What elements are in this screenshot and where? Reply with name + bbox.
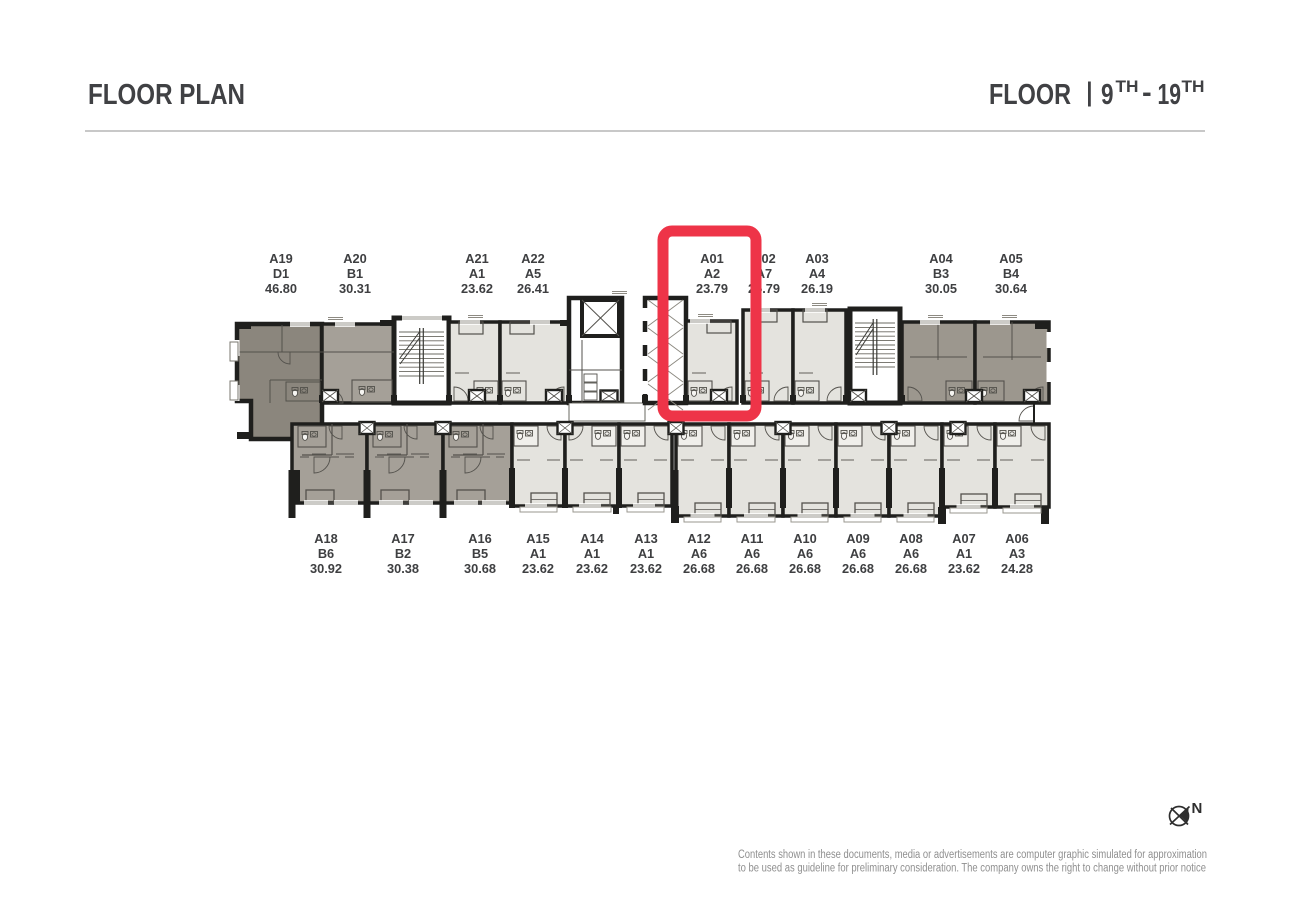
svg-text:-: - [1142, 77, 1152, 109]
svg-text:TH: TH [1182, 78, 1205, 96]
svg-text:Contents shown in these docum: Contents shown in these documents, media… [738, 849, 1207, 861]
svg-text:FLOOR: FLOOR [989, 79, 1071, 111]
svg-text:FLOOR PLAN: FLOOR PLAN [88, 79, 245, 111]
svg-text:N: N [1192, 800, 1203, 817]
svg-text:TH: TH [1116, 78, 1139, 96]
svg-text:to be used as guideline for pr: to be used as guideline for preliminary … [738, 863, 1206, 875]
svg-text:9: 9 [1101, 79, 1114, 111]
svg-text:19: 19 [1158, 79, 1182, 111]
